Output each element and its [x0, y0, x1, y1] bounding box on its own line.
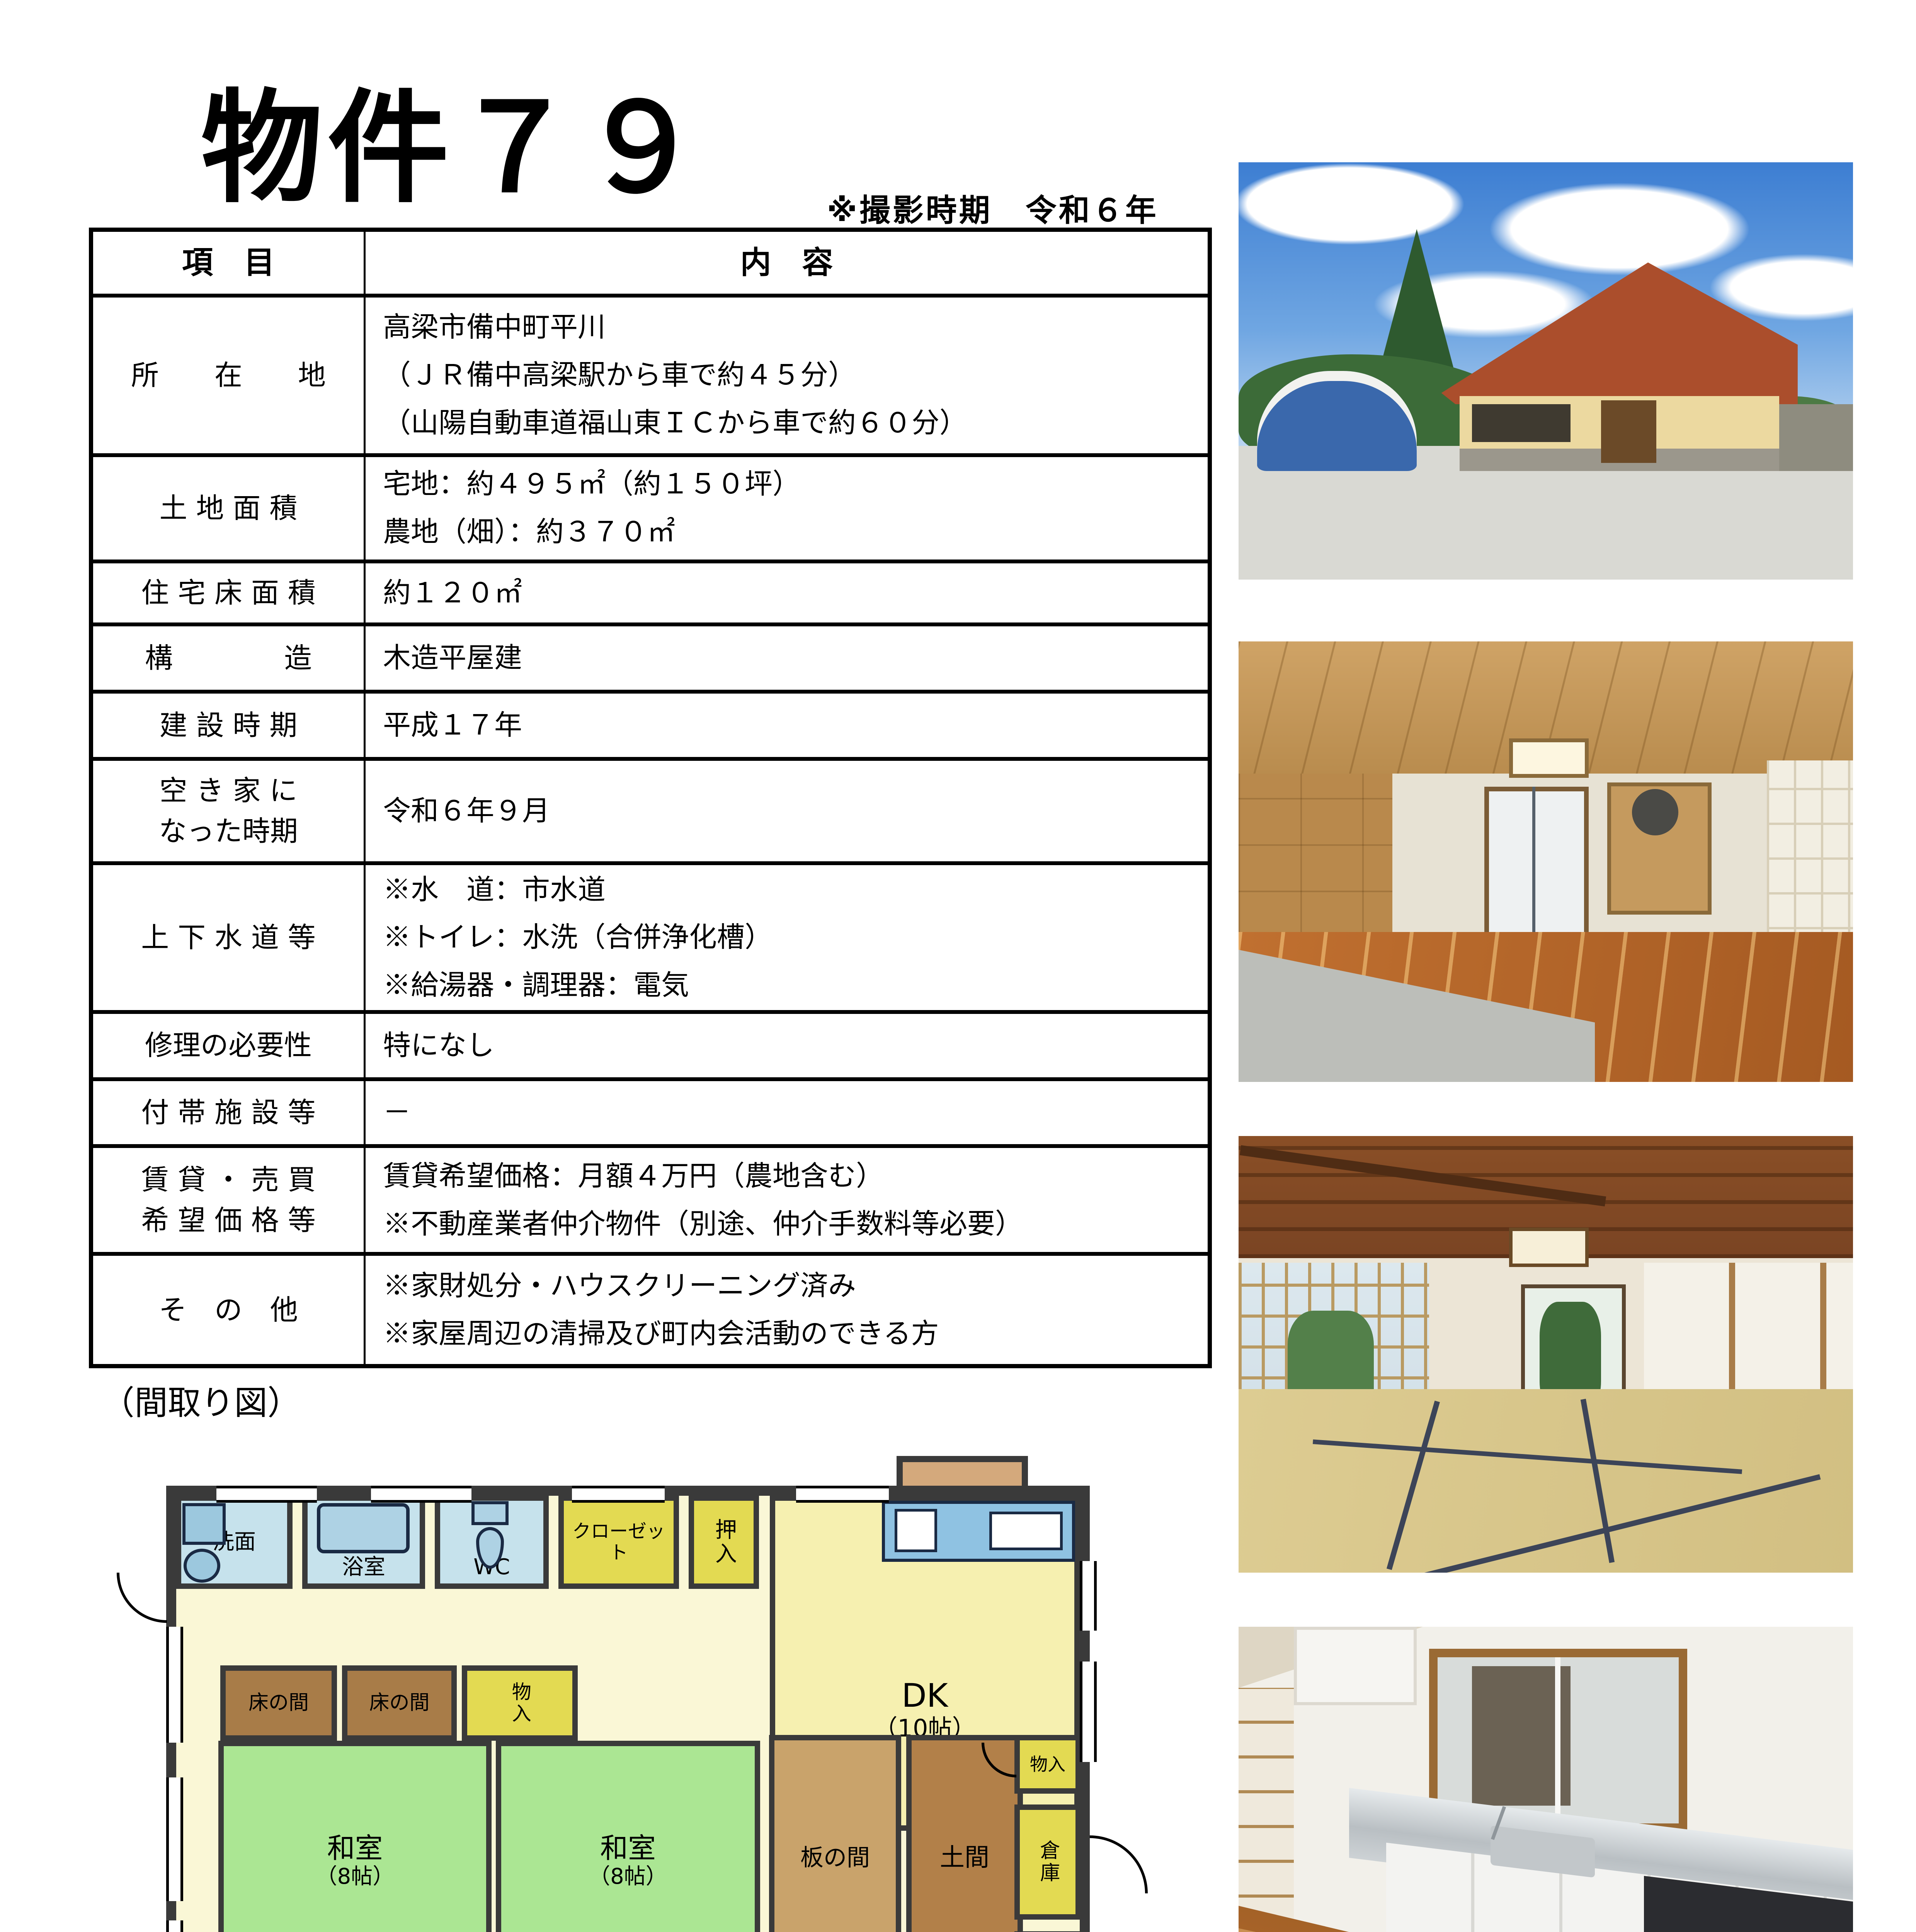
house-window — [1472, 404, 1570, 442]
table-row-built-year: 建 設 時 期 平成１７年 — [93, 694, 1208, 761]
photo-tatami-room — [1239, 1136, 1853, 1573]
table-row-land-area: 土 地 面 積 宅地：約４９５㎡（約１５０坪） 農地（畑）：約３７０㎡ — [93, 457, 1208, 563]
row-label: 希 望 価 格 等 — [141, 1200, 316, 1240]
window — [166, 1920, 183, 1932]
property-spec-table: 項 目 内 容 所 在 地 高梁市備中町平川 （ＪＲ備中高梁駅から車で約４５分）… — [89, 228, 1212, 1368]
cell-line: 農地（畑）：約３７０㎡ — [383, 508, 1208, 556]
round-mirror — [1632, 789, 1678, 835]
table-row-repairs: 修理の必要性 特になし — [93, 1014, 1208, 1081]
cell-line: （山陽自動車道福山東ＩＣから車で約６０分） — [383, 399, 1208, 447]
cell-line: 令和６年９月 — [383, 787, 1208, 835]
cell-line: 約１２０㎡ — [383, 569, 1208, 617]
room-monoire-top: 物入 — [462, 1665, 578, 1741]
window — [371, 1486, 471, 1503]
header-content: 内 容 — [366, 232, 1208, 294]
row-label: 賃 貸 ・ 売 買 — [141, 1160, 316, 1200]
stove-icon — [895, 1509, 937, 1552]
floor-plan: 洗面 浴室 WC クローゼット 押入 DK （10帖） 床の間 — [162, 1445, 1105, 1932]
room-label: 倉庫 — [1036, 1840, 1059, 1884]
cell-line: ※家屋周辺の清掃及び町内会活動のできる方 — [383, 1310, 1208, 1358]
kitchen-sink-icon — [989, 1512, 1063, 1550]
floor-plan-caption: （間取り図） — [101, 1376, 301, 1424]
cell-line: 宅地：約４９５㎡（約１５０坪） — [383, 460, 1208, 508]
toilet-tank-icon — [471, 1501, 509, 1525]
cell-line: ※不動産業者仲介物件（別途、仲介手数料等必要） — [383, 1200, 1208, 1248]
window — [166, 1777, 183, 1901]
row-label: そ の 他 — [159, 1290, 298, 1330]
window-sash — [1555, 1657, 1560, 1823]
cell-line: 特になし — [383, 1022, 1208, 1070]
table-row-vacant-since: 空 き 家 に なった時期 令和６年９月 — [93, 761, 1208, 865]
sink-bowl-icon — [184, 1549, 220, 1583]
row-label: 上 下 水 道 等 — [141, 917, 316, 957]
table-header-row: 項 目 内 容 — [93, 232, 1208, 298]
row-label: 空 き 家 に — [160, 770, 298, 811]
window — [1080, 1662, 1097, 1762]
side-door-arc — [1090, 1835, 1148, 1893]
room-itanoma: 板の間 — [769, 1735, 901, 1932]
table-row-location: 所 在 地 高梁市備中町平川 （ＪＲ備中高梁駅から車で約４５分） （山陽自動車道… — [93, 298, 1208, 457]
photo-period-note: ※撮影時期 令和６年 — [827, 185, 1159, 230]
room-label: 物入 — [509, 1682, 531, 1725]
bathtub-icon — [317, 1503, 410, 1553]
row-label: 建 設 時 期 — [160, 705, 298, 745]
cell-line: 高梁市備中町平川 — [383, 303, 1208, 351]
room-label: 押入 — [711, 1518, 736, 1566]
photo-kitchen — [1239, 1627, 1853, 1932]
header-item: 項 目 — [93, 232, 366, 294]
room-label: 板の間 — [800, 1845, 870, 1871]
room-tokonoma-2: 床の間 — [342, 1665, 457, 1741]
page-title: 物件７９ — [201, 81, 706, 215]
ceiling-light — [1509, 738, 1589, 778]
room-washitsu-2: 和室 （8帖） — [496, 1741, 760, 1932]
row-label: なった時期 — [159, 811, 298, 851]
window — [796, 1486, 889, 1503]
cell-line: ※水 道：市水道 — [383, 866, 1208, 914]
table-row-attachments: 付 帯 施 設 等 － — [93, 1081, 1208, 1148]
house-door — [1601, 400, 1656, 463]
cell-line: ※トイレ：水洗（合併浄化槽） — [383, 913, 1208, 961]
room-label: 物入 — [1030, 1754, 1065, 1775]
upper-cabinet — [1294, 1627, 1417, 1705]
cell-line: 平成１７年 — [383, 701, 1208, 749]
room-size-label: （8帖） — [589, 1864, 667, 1889]
washing-machine-icon — [182, 1503, 226, 1545]
row-label: 住 宅 床 面 積 — [141, 573, 316, 613]
shoji-door — [1239, 1688, 1294, 1932]
room-label: DK — [902, 1677, 948, 1714]
room-label: クローゼット — [564, 1521, 674, 1563]
cell-line: ※家財処分・ハウスクリーニング済み — [383, 1262, 1208, 1310]
room-size-label: （8帖） — [316, 1864, 395, 1889]
photo-entry-room — [1239, 641, 1853, 1082]
entry-door-arc — [117, 1573, 167, 1623]
cell-line: － — [383, 1088, 1208, 1136]
room-tokonoma-1: 床の間 — [220, 1665, 337, 1741]
window — [216, 1486, 317, 1503]
room-souko: 倉庫 — [1014, 1804, 1081, 1920]
cell-line: ※給湯器・調理器：電気 — [383, 961, 1208, 1009]
row-label: 所 在 地 — [131, 355, 326, 395]
cell-line: 賃貸希望価格：月額４万円（農地含む） — [383, 1152, 1208, 1200]
row-label: 構 造 — [145, 638, 312, 678]
row-label: 修理の必要性 — [145, 1025, 312, 1065]
room-label: 床の間 — [369, 1692, 429, 1715]
row-label: 付 帯 施 設 等 — [141, 1092, 316, 1133]
room-washitsu-1: 和室 （8帖） — [218, 1741, 492, 1932]
table-row-floor-area: 住 宅 床 面 積 約１２０㎡ — [93, 563, 1208, 627]
row-label: 土 地 面 積 — [160, 488, 298, 528]
window — [166, 1627, 183, 1743]
room-label: 浴室 — [342, 1555, 385, 1580]
table-row-price: 賃 貸 ・ 売 買 希 望 価 格 等 賃貸希望価格：月額４万円（農地含む） ※… — [93, 1148, 1208, 1256]
room-closet: クローゼット — [558, 1495, 679, 1589]
room-label: 和室 — [600, 1832, 656, 1864]
photo-exterior-house — [1239, 162, 1853, 580]
table-row-utilities: 上 下 水 道 等 ※水 道：市水道 ※トイレ：水洗（合併浄化槽） ※給湯器・調… — [93, 865, 1208, 1014]
cell-line: （ＪＲ備中高梁駅から車で約４５分） — [383, 351, 1208, 399]
cell-line: 木造平屋建 — [383, 634, 1208, 682]
room-label: 和室 — [327, 1832, 383, 1864]
window — [1080, 1561, 1097, 1631]
property-sheet-page: 物件７９ ※撮影時期 令和６年 項 目 内 容 所 在 地 高梁市備中町平川 （… — [0, 0, 1916, 1932]
room-label: 土間 — [940, 1844, 989, 1872]
table-row-other: そ の 他 ※家財処分・ハウスクリーニング済み ※家屋周辺の清掃及び町内会活動の… — [93, 1256, 1208, 1364]
table-row-structure: 構 造 木造平屋建 — [93, 626, 1208, 694]
pendant-lamp — [1509, 1228, 1589, 1267]
room-oshiire: 押入 — [689, 1495, 759, 1589]
window — [572, 1486, 665, 1503]
room-monoire-right-top: 物入 — [1014, 1735, 1081, 1794]
room-label: 床の間 — [248, 1692, 309, 1715]
